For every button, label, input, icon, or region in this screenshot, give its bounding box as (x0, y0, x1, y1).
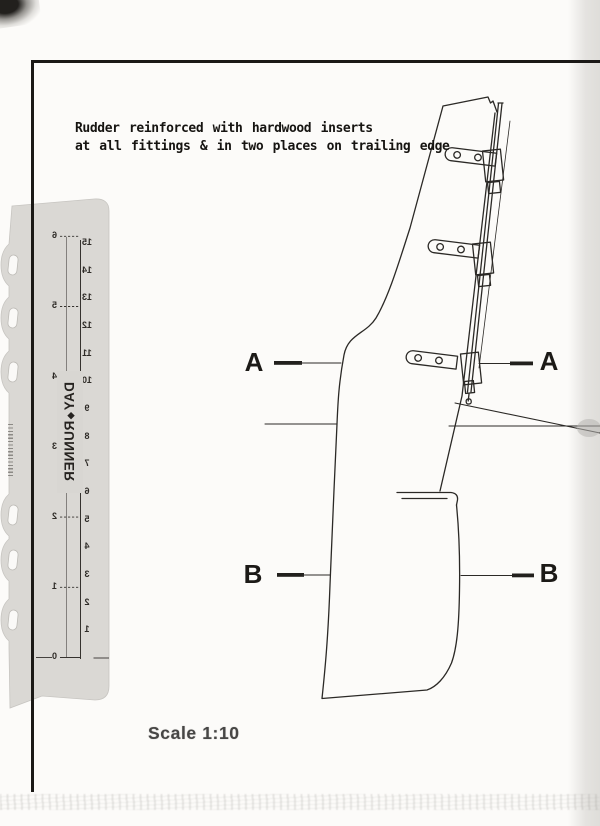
rudder-flange-lines (397, 493, 458, 506)
ruler-fine-print-text (8, 424, 13, 478)
border-line-top (31, 60, 600, 63)
section-b-right-dash (512, 574, 534, 578)
scanned-drawing-page: Rudder reinforced with hardwood inserts … (0, 0, 600, 826)
ruler-inch-label: 0 (47, 651, 62, 662)
section-label-b-left: B (238, 561, 268, 587)
ruler-cm-label: 14 (80, 265, 94, 276)
rudder-blade-outline (322, 97, 497, 699)
ruler-cm-label: 1 (80, 624, 94, 635)
ruler-cm-label: 15 (80, 237, 94, 248)
ruler-cm-label: 13 (80, 292, 94, 303)
ruler-inch-label: 2 (47, 511, 62, 522)
scale-label: Scale 1:10 (148, 723, 240, 744)
section-a-right-dash (510, 362, 533, 366)
section-label-b-right: B (534, 560, 564, 586)
ruler-inch-label: 6 (47, 230, 62, 241)
section-a-left-dash (274, 361, 302, 365)
ruler-inch-label: 1 (47, 581, 62, 592)
pintle-rod (468, 103, 511, 392)
ruler-cm-label: 2 (80, 597, 94, 608)
pintle-strap-2 (427, 239, 479, 258)
ruler-brand-logo: DAY◆RUNNER (57, 371, 83, 493)
annotation-line-1: Rudder reinforced with hardwood inserts (75, 121, 373, 136)
annotation-line-2: at all fittings & in two places on trail… (75, 139, 449, 154)
brand-day: DAY (62, 382, 77, 411)
section-b-left-dash (277, 573, 304, 577)
ruler-cm-label: 4 (80, 541, 94, 552)
ruler-cm-label: 5 (80, 514, 94, 525)
section-label-a-right: A (534, 348, 564, 374)
brand-runner: RUNNER (62, 421, 77, 482)
ruler-cm-label: 3 (80, 569, 94, 580)
waterline-smudge (577, 419, 600, 437)
ruler-cm-label: 12 (80, 320, 94, 331)
rudder-drawing (265, 97, 600, 699)
ruler-cm-label: 11 (80, 348, 94, 359)
section-label-a-left: A (239, 349, 269, 375)
border-line-left (31, 60, 34, 792)
section-marker-lines (274, 361, 534, 577)
ruler-inch-label: 5 (47, 300, 62, 311)
pintle-strap-3 (405, 350, 457, 369)
day-runner-diamond-icon: ◆ (65, 411, 75, 421)
